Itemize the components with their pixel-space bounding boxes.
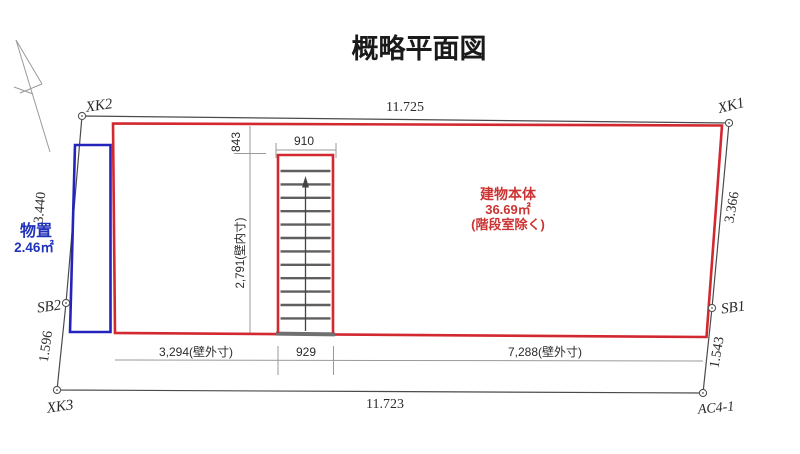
dim-stair-inner-height: 2,791(壁内寸) <box>233 217 247 288</box>
label-xk1: XK1 <box>715 95 746 117</box>
stair-up-arrow-icon <box>302 176 309 188</box>
storage-name: 物置 <box>20 221 52 240</box>
floor-plan-drawing: 概略平面図 <box>0 0 800 454</box>
label-xk2: XK2 <box>84 96 114 116</box>
building-note: (階段室除く) <box>471 217 545 232</box>
building-area: 36.69㎡ <box>485 202 531 217</box>
dim-right-outer-width: 7,288(壁外寸) <box>508 344 582 359</box>
dim-site-left-lower: 1.596 <box>37 330 56 363</box>
dim-site-left-upper: 3.440 <box>32 191 50 224</box>
page-title: 概略平面図 <box>352 33 487 64</box>
dim-site-top: 11.725 <box>386 100 424 115</box>
label-ac4-1: AC4-1 <box>696 399 735 417</box>
staircase <box>276 155 335 334</box>
label-sb2: SB2 <box>36 297 63 316</box>
dim-stair-offset-top: 843 <box>229 132 243 152</box>
label-sb1: SB1 <box>720 298 746 317</box>
building-outline <box>113 124 722 338</box>
north-arrow-icon <box>14 40 50 152</box>
site-boundary <box>57 116 729 393</box>
floor-plan-canvas: 概略平面図 <box>0 0 800 454</box>
dim-left-outer-width: 3,294(壁外寸) <box>159 344 233 359</box>
survey-point-markers <box>53 112 732 396</box>
dim-site-bottom: 11.723 <box>366 397 404 412</box>
label-xk3: XK3 <box>45 397 75 417</box>
building-name: 建物本体 <box>480 186 537 202</box>
storage-area: 2.46㎡ <box>14 239 54 255</box>
dim-stair-width-bottom: 929 <box>296 345 316 359</box>
dim-site-right-lower: 1.543 <box>707 336 727 370</box>
dim-stair-width-top: 910 <box>294 134 314 148</box>
storage-outline <box>70 145 111 332</box>
dim-site-right-upper: 3.366 <box>722 191 742 225</box>
